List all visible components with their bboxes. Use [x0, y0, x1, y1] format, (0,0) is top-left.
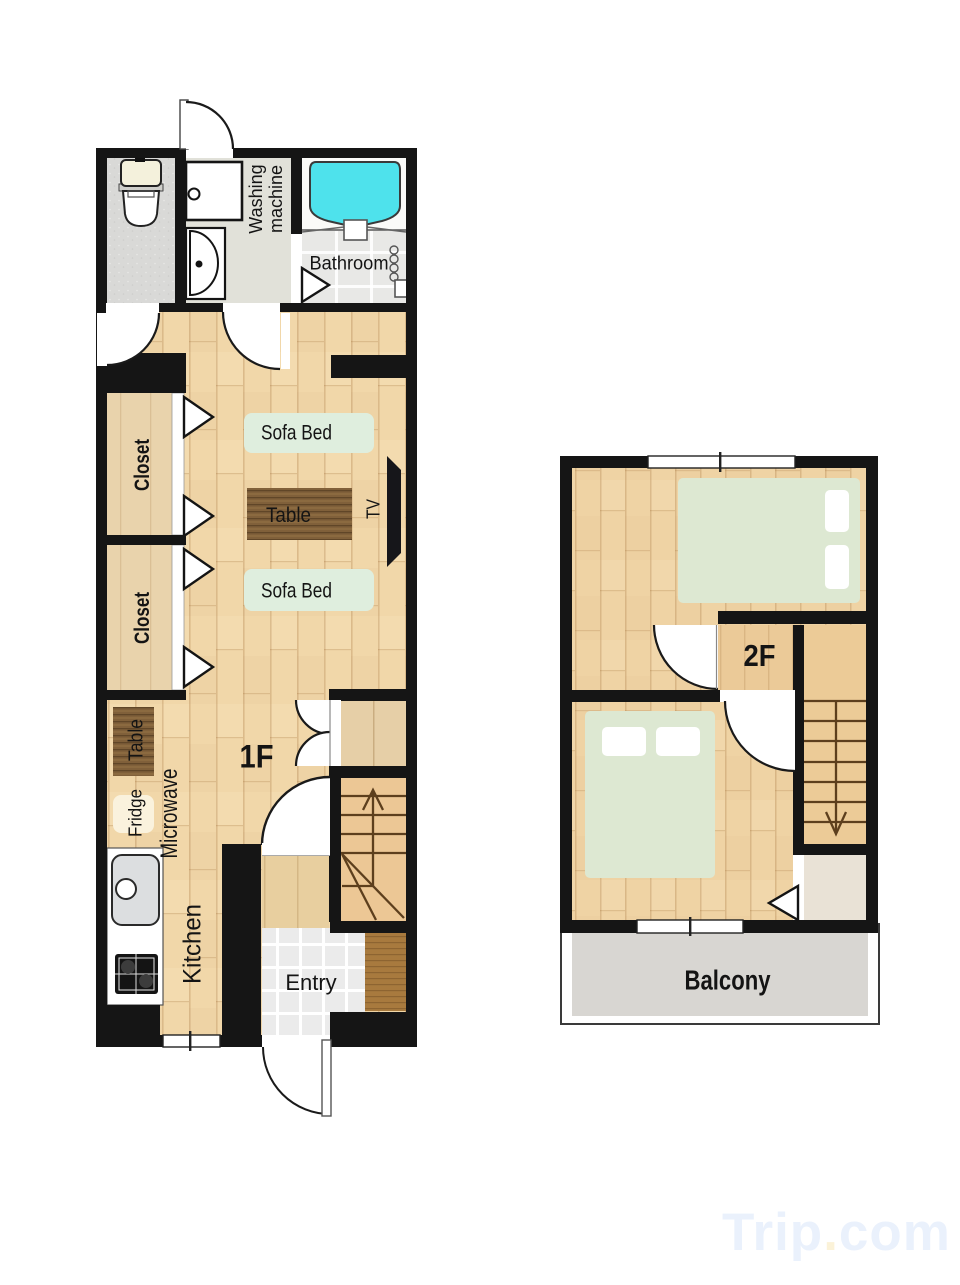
svg-text:Trip.com: Trip.com: [722, 1203, 951, 1262]
svg-text:Entry: Entry: [285, 970, 336, 995]
svg-text:Kitchen: Kitchen: [179, 904, 207, 984]
svg-text:TV: TV: [364, 499, 384, 519]
svg-text:Sofa Bed: Sofa Bed: [261, 580, 332, 603]
svg-text:1F: 1F: [240, 739, 274, 775]
svg-text:Balcony: Balcony: [685, 965, 771, 996]
svg-text:2F: 2F: [744, 639, 776, 673]
svg-text:Fridge: Fridge: [126, 789, 146, 837]
svg-text:Closet: Closet: [131, 439, 154, 491]
svg-text:Washingmachine: Washingmachine: [246, 164, 286, 233]
svg-text:Bathroom: Bathroom: [310, 254, 389, 275]
svg-text:Table: Table: [266, 504, 311, 527]
svg-text:Microwave: Microwave: [156, 769, 183, 859]
svg-text:Sofa Bed: Sofa Bed: [261, 422, 332, 445]
svg-text:Table: Table: [126, 719, 148, 761]
svg-text:Closet: Closet: [131, 592, 154, 644]
